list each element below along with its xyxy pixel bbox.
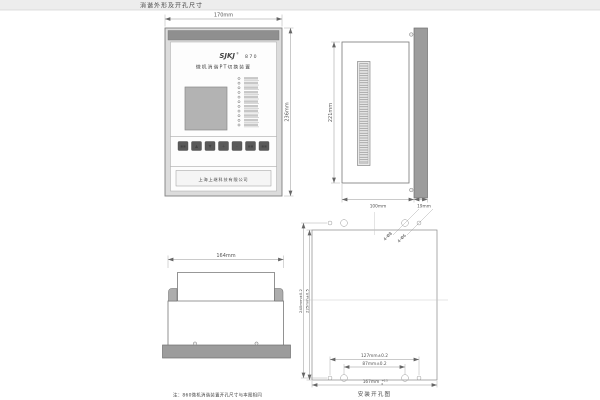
svg-text:+: + xyxy=(222,144,225,149)
mounting-cutout-view: 4-Φ8 4-Φ6 240mm±0.2 225mm±0.5 127mm±0.2 … xyxy=(298,209,448,398)
small-hole xyxy=(328,376,332,380)
small-hole-callout: 4-Φ6 xyxy=(396,233,408,245)
product-name: 微机消谐PT切换装置 xyxy=(196,64,251,71)
drawing-sheet: 消谐外形及开孔尺寸 170mm SJKJ ® 870 微机消谐PT切换装置 xyxy=(0,0,600,400)
down-button[interactable]: ▼ xyxy=(205,142,215,151)
front-width-dimension: 170mm xyxy=(214,13,233,19)
top-screw-right xyxy=(255,342,258,345)
large-hole xyxy=(402,375,409,382)
reset-button[interactable]: ▪▪ xyxy=(178,142,188,151)
registered-mark: ® xyxy=(236,52,239,56)
dimension-drawing: 消谐外形及开孔尺寸 170mm SJKJ ® 870 微机消谐PT切换装置 xyxy=(0,0,600,400)
side-view: 221mm 100mm 19mm xyxy=(328,28,431,210)
mounting-clip-left xyxy=(169,289,178,302)
minus-button[interactable]: - xyxy=(232,142,242,151)
top-width-dimension: 164mm xyxy=(216,253,235,259)
side-panel-dimension: 19mm xyxy=(417,204,431,210)
small-hole xyxy=(328,221,332,225)
confirm-button[interactable]: ▪▪ xyxy=(246,142,256,151)
top-screw-left xyxy=(193,342,196,345)
top-view: 164mm xyxy=(163,253,291,358)
up-button[interactable]: ▲ xyxy=(192,142,202,151)
button-row: ▪▪ ▲ ▼ + - ▪▪ xyxy=(178,142,269,151)
svg-text:▪▪: ▪▪ xyxy=(261,144,267,149)
cancel-button[interactable]: ▪▪ xyxy=(259,142,269,151)
side-panel-slab xyxy=(414,28,428,198)
cutout-width-dimension: 167mm xyxy=(363,379,380,385)
top-front-body xyxy=(168,301,284,345)
top-panel-bar xyxy=(163,345,291,358)
side-body xyxy=(342,42,409,183)
model-number: 870 xyxy=(245,54,258,60)
mounting-screw-bottom xyxy=(410,188,414,192)
header-bar xyxy=(0,0,600,10)
plus-button[interactable]: + xyxy=(219,142,229,151)
page-title: 消谐外形及开孔尺寸 xyxy=(140,2,203,10)
svg-text:▪▪: ▪▪ xyxy=(180,144,186,149)
svg-text:▪▪: ▪▪ xyxy=(248,144,254,149)
side-depth-dimension: 100mm xyxy=(370,204,387,210)
brand-logo: SJKJ xyxy=(219,52,235,60)
header: 消谐外形及开孔尺寸 xyxy=(0,0,600,10)
top-rear-body xyxy=(178,273,275,302)
footnote: 注：860微机消谐装置开孔尺寸与本图相同 xyxy=(173,392,262,399)
outer-holes-dimension: 127mm±0.2 xyxy=(361,353,388,359)
hole-span-dimension: 240mm±0.2 xyxy=(298,288,303,312)
terminal-pins xyxy=(360,64,369,164)
front-panel-top-band xyxy=(168,31,279,41)
small-hole xyxy=(417,376,421,380)
front-view: 170mm SJKJ ® 870 微机消谐PT切换装置 xyxy=(165,13,294,197)
inner-holes-dimension: 87mm±0.2 xyxy=(362,361,387,367)
mounting-view-caption: 安装开孔图 xyxy=(358,390,392,398)
large-hole xyxy=(341,375,348,382)
cutout-height-dimension: 225mm±0.5 xyxy=(304,288,309,312)
large-hole-callout: 4-Φ8 xyxy=(382,231,394,243)
side-height-dimension: 221mm xyxy=(328,103,334,122)
mounting-screw-top xyxy=(410,33,414,37)
front-height-dimension: 236mm xyxy=(285,102,291,121)
mounting-clip-right xyxy=(275,289,284,302)
company-name: 上海上继科技有限公司 xyxy=(199,176,249,183)
large-hole xyxy=(341,220,348,227)
lcd-screen xyxy=(185,87,227,130)
